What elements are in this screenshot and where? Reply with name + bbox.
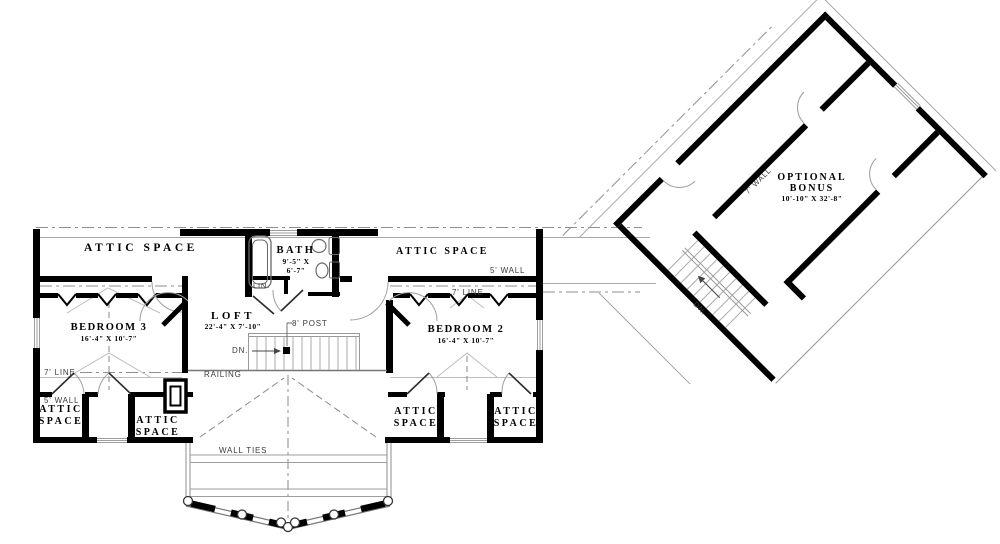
wall5-left-label: 5' WALL — [44, 396, 79, 405]
line7-right-label: 7' LINE — [452, 288, 484, 297]
bedroom3-label: BEDROOM 3 16'-4" X 10'-7" — [58, 322, 160, 343]
loft-label: LOFT 22'-4" X 7'-10" — [183, 310, 283, 331]
floor-plan: ATTIC SPACE ATTIC SPACE BATH 9'-5" X 6'-… — [0, 0, 1000, 544]
bedroom2-label: BEDROOM 2 16'-4" X 10'-7" — [414, 324, 518, 345]
attic-space-lower-right-1-label: ATTIC SPACE — [390, 406, 442, 429]
down-loft-label: DN. — [232, 346, 248, 355]
bath-label: BATH 9'-5" X 6'-7" — [266, 245, 326, 275]
attic-space-top-right-label: ATTIC SPACE — [396, 246, 489, 257]
bonus-window — [894, 83, 920, 109]
attic-space-lower-right-2-label: ATTIC SPACE — [490, 406, 542, 429]
linen-label: LIN. — [253, 281, 270, 290]
post-marker — [283, 347, 290, 354]
line7-left-label: 7' LINE — [44, 368, 76, 377]
optional-bonus-label: OPTIONAL BONUS 10'-10" X 32'-8" — [762, 172, 862, 203]
wall-ties-label: WALL TIES — [219, 446, 267, 455]
attic-space-lower-left-2-label: ATTIC SPACE — [132, 415, 184, 438]
attic-space-top-left-label: ATTIC SPACE — [84, 242, 198, 254]
bonus-wing — [563, 0, 996, 420]
wall5-right-label: 5' WALL — [490, 266, 525, 275]
railing-label: RAILING — [204, 370, 242, 379]
down-arrow-icon — [274, 348, 281, 354]
chimney-chase — [165, 380, 186, 412]
attic-space-lower-left-1-label: ATTIC SPACE — [35, 404, 87, 427]
post-label: 8' POST — [292, 319, 328, 328]
